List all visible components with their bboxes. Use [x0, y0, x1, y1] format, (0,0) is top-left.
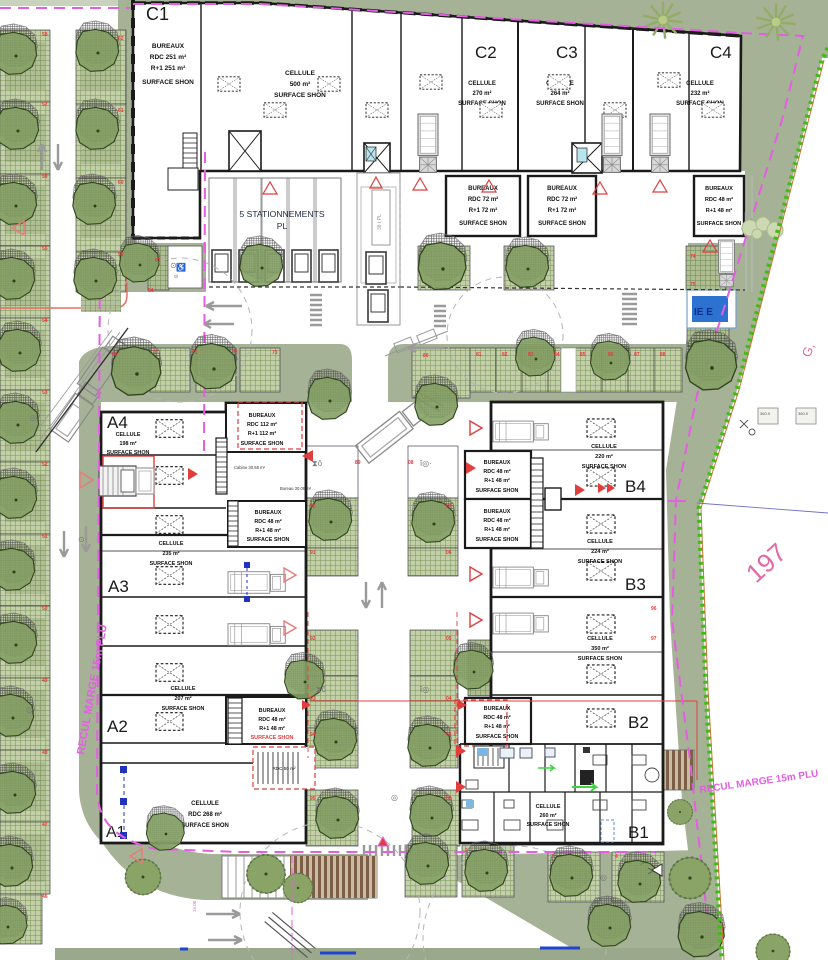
svg-text:93: 93: [310, 696, 316, 702]
svg-text:57: 57: [42, 102, 48, 108]
svg-text:CELLULE: CELLULE: [587, 539, 613, 545]
svg-text:SURFACE SHON: SURFACE SHON: [247, 537, 290, 543]
svg-text:47: 47: [42, 822, 48, 828]
svg-text:RDC 268 m²: RDC 268 m²: [188, 811, 222, 818]
svg-text:3: 3: [551, 854, 554, 860]
svg-text:92: 92: [310, 636, 316, 642]
svg-text:50: 50: [42, 606, 48, 612]
svg-text:R+1 48 m²: R+1 48 m²: [259, 726, 285, 732]
svg-text:B1: B1: [628, 823, 649, 842]
svg-text:500 m²: 500 m²: [290, 81, 311, 88]
svg-text:1: 1: [408, 848, 411, 854]
svg-text:R+1 251 m²: R+1 251 m²: [151, 65, 186, 72]
svg-text:RDC 48 m²: RDC 48 m²: [705, 196, 733, 203]
svg-text:RDC 72 m²: RDC 72 m²: [547, 196, 577, 203]
svg-text:CELLULE: CELLULE: [591, 444, 617, 450]
svg-text:BUREAUX: BUREAUX: [249, 413, 276, 419]
svg-text:SURFACE SHON: SURFACE SHON: [107, 450, 150, 456]
svg-text:Bureau 30.09 m²: Bureau 30.09 m²: [280, 486, 312, 491]
svg-text:81: 81: [476, 352, 482, 358]
svg-text:220 m²: 220 m²: [595, 453, 613, 460]
svg-text:A4: A4: [107, 413, 128, 432]
svg-text:CELLULE: CELLULE: [686, 81, 714, 87]
svg-text:A3: A3: [108, 577, 129, 596]
svg-text:IE E: IE E: [694, 307, 713, 318]
svg-text:BUREAUX: BUREAUX: [255, 510, 282, 516]
svg-text:SURFACE SHON: SURFACE SHON: [578, 656, 622, 662]
svg-text:360.9: 360.9: [760, 411, 771, 416]
svg-text:235 m²: 235 m²: [162, 551, 179, 557]
svg-text:232 m²: 232 m²: [690, 90, 709, 97]
svg-text:51: 51: [42, 534, 48, 540]
svg-text:CELLULE: CELLULE: [191, 801, 219, 807]
svg-text:SURFACE SHON: SURFACE SHON: [241, 441, 284, 447]
svg-text:CELLULE: CELLULE: [468, 81, 496, 87]
svg-text:PL: PL: [277, 221, 288, 231]
svg-text:R+1 48 m²: R+1 48 m²: [484, 724, 510, 730]
svg-text:91: 91: [310, 550, 316, 556]
svg-text:04: 04: [446, 696, 452, 702]
svg-text:⊙·: ⊙·: [78, 535, 87, 544]
svg-text:BUREAUX: BUREAUX: [259, 708, 286, 714]
svg-text:15.00: 15.00: [192, 900, 197, 912]
svg-text:BUREAUX: BUREAUX: [484, 460, 511, 466]
svg-text:BUREAUX: BUREAUX: [547, 186, 577, 192]
svg-text:360.9: 360.9: [798, 411, 809, 416]
svg-text:71: 71: [192, 350, 198, 356]
svg-text:96: 96: [651, 606, 657, 612]
svg-text:RDC 48 m²: RDC 48 m²: [258, 717, 285, 723]
svg-text:R+1 48 m²: R+1 48 m²: [706, 207, 733, 214]
svg-text:CELLULE: CELLULE: [171, 686, 196, 692]
svg-text:SURFACE SHON: SURFACE SHON: [538, 221, 586, 227]
svg-text:R+1 72 m²: R+1 72 m²: [469, 207, 498, 214]
svg-text:85: 85: [580, 352, 586, 358]
svg-text:69: 69: [112, 352, 118, 358]
svg-text:R+1 48 m²: R+1 48 m²: [484, 527, 510, 533]
svg-text:4: 4: [615, 854, 618, 860]
svg-text:350 m²: 350 m²: [591, 645, 609, 652]
svg-text:52: 52: [42, 462, 48, 468]
svg-text:07: 07: [446, 504, 452, 510]
svg-text:15.00: 15.00: [292, 872, 297, 884]
svg-text:SURFACE SHON: SURFACE SHON: [476, 537, 519, 543]
svg-text:207 m²: 207 m²: [174, 696, 191, 702]
svg-text:70: 70: [152, 350, 158, 356]
svg-text:RDC 48 m²: RDC 48 m²: [254, 519, 281, 525]
svg-text:48: 48: [42, 750, 48, 756]
svg-text:CELLULE: CELLULE: [587, 636, 613, 642]
svg-text:260 m²: 260 m²: [539, 813, 556, 819]
svg-text:SURFACE SHON: SURFACE SHON: [582, 464, 626, 470]
svg-text:B2: B2: [628, 713, 649, 732]
svg-text:224 m²: 224 m²: [591, 548, 609, 555]
svg-text:05: 05: [446, 636, 452, 642]
svg-text:⧗ô: ⧗ô: [316, 685, 327, 694]
svg-text:î◎·: î◎·: [419, 685, 432, 694]
svg-text:SURFACE SHON: SURFACE SHON: [162, 706, 205, 712]
svg-text:SURFACE SHON: SURFACE SHON: [459, 221, 507, 227]
svg-text:RDC 50 m²: RDC 50 m²: [273, 766, 296, 771]
svg-text:73: 73: [272, 350, 278, 356]
svg-text:◎: ◎: [391, 793, 398, 802]
svg-text:264 m²: 264 m²: [550, 90, 569, 97]
svg-text:R+1 112 m²: R+1 112 m²: [248, 431, 277, 437]
svg-text:2: 2: [465, 848, 468, 854]
svg-text:38 t PL: 38 t PL: [377, 214, 383, 230]
svg-text:RDC 112 m²: RDC 112 m²: [247, 422, 277, 428]
svg-text:⊙: ⊙: [170, 261, 177, 270]
svg-text:82: 82: [502, 352, 508, 358]
svg-text:88: 88: [660, 352, 666, 358]
svg-text:RDC 72 m²: RDC 72 m²: [468, 196, 498, 203]
svg-text:06: 06: [446, 550, 452, 556]
svg-text:55: 55: [42, 246, 48, 252]
svg-text:BUREAUX: BUREAUX: [705, 186, 733, 192]
svg-text:◎: ◎: [600, 873, 607, 882]
svg-text:◎·: ◎·: [26, 705, 36, 714]
svg-text:SURFACE SHON: SURFACE SHON: [181, 823, 229, 829]
svg-text:46: 46: [42, 894, 48, 900]
svg-text:62: 62: [118, 36, 124, 42]
svg-text:89: 89: [355, 460, 361, 466]
svg-text:⧗ô: ⧗ô: [312, 459, 323, 468]
svg-text:5 STATIONNEMENTS: 5 STATIONNEMENTS: [239, 209, 324, 219]
svg-text:CELLULE: CELLULE: [536, 804, 561, 810]
svg-text:53: 53: [42, 390, 48, 396]
svg-text:Cabine 30.58 m²: Cabine 30.58 m²: [234, 465, 266, 470]
svg-text:97: 97: [651, 636, 657, 642]
svg-text:87: 87: [634, 352, 640, 358]
svg-text:270 m²: 270 m²: [472, 90, 491, 97]
svg-text:80: 80: [423, 353, 429, 359]
svg-text:95: 95: [310, 796, 316, 802]
svg-text:RDC 251 m²: RDC 251 m²: [150, 54, 187, 61]
svg-text:83: 83: [528, 352, 534, 358]
svg-text:54: 54: [42, 318, 48, 324]
svg-text:B3: B3: [625, 575, 646, 594]
svg-text:59: 59: [118, 252, 124, 258]
svg-text:C2: C2: [475, 43, 497, 62]
svg-text:SURFACE SHON: SURFACE SHON: [536, 101, 584, 107]
svg-text:CELLULE: CELLULE: [116, 432, 141, 438]
svg-text:SURFACE SHON: SURFACE SHON: [476, 734, 519, 740]
svg-text:02: 02: [446, 796, 452, 802]
svg-text:CELLULE: CELLULE: [285, 70, 316, 77]
svg-text:C3: C3: [556, 43, 578, 62]
svg-text:BUREAUX: BUREAUX: [484, 509, 511, 515]
svg-text:SURFACE SHON: SURFACE SHON: [578, 559, 622, 565]
svg-text:64: 64: [148, 288, 154, 294]
svg-text:♿: ♿: [176, 262, 186, 272]
svg-text:R+1 48 m²: R+1 48 m²: [255, 528, 281, 534]
svg-text:56: 56: [42, 174, 48, 180]
svg-text:84: 84: [554, 352, 560, 358]
svg-text:63: 63: [155, 258, 161, 264]
svg-text:RDC 48 m²: RDC 48 m²: [483, 518, 510, 524]
svg-text:SURFACE SHON: SURFACE SHON: [476, 488, 519, 494]
svg-text:B4: B4: [625, 477, 646, 496]
svg-text:08: 08: [408, 460, 414, 466]
svg-text:⊙: ⊙: [174, 274, 178, 280]
svg-text:61: 61: [118, 108, 124, 114]
svg-text:SURFACE SHON: SURFACE SHON: [274, 92, 326, 99]
svg-text:198 m²: 198 m²: [119, 441, 136, 447]
svg-text:60: 60: [118, 180, 124, 186]
svg-text:î◎·: î◎·: [419, 459, 432, 468]
svg-text:94: 94: [310, 732, 316, 738]
svg-text:58: 58: [42, 32, 48, 38]
svg-text:C4: C4: [710, 43, 732, 62]
svg-text:SURFACE SHON: SURFACE SHON: [150, 561, 193, 567]
svg-text:RDC 48 m²: RDC 48 m²: [483, 469, 510, 475]
svg-text:CELLULE: CELLULE: [159, 541, 184, 547]
svg-text:R+1 48 m²: R+1 48 m²: [484, 478, 510, 484]
svg-text:90: 90: [310, 504, 316, 510]
svg-text:BUREAUX: BUREAUX: [152, 43, 185, 50]
svg-text:74: 74: [690, 254, 696, 260]
svg-text:A2: A2: [107, 717, 128, 736]
svg-text:03: 03: [446, 732, 452, 738]
svg-text:◎: ◎: [30, 413, 37, 422]
svg-text:49: 49: [42, 678, 48, 684]
svg-text:SURFACE SHON: SURFACE SHON: [142, 79, 194, 86]
svg-text:R+1 72 m²: R+1 72 m²: [548, 207, 577, 214]
svg-text:C1: C1: [146, 4, 169, 24]
svg-text:72: 72: [232, 350, 238, 356]
svg-text:75: 75: [690, 282, 696, 288]
svg-text:SURFACE SHON: SURFACE SHON: [251, 735, 294, 741]
svg-text:86: 86: [608, 352, 614, 358]
svg-text:SURFACE SHON: SURFACE SHON: [697, 221, 741, 227]
